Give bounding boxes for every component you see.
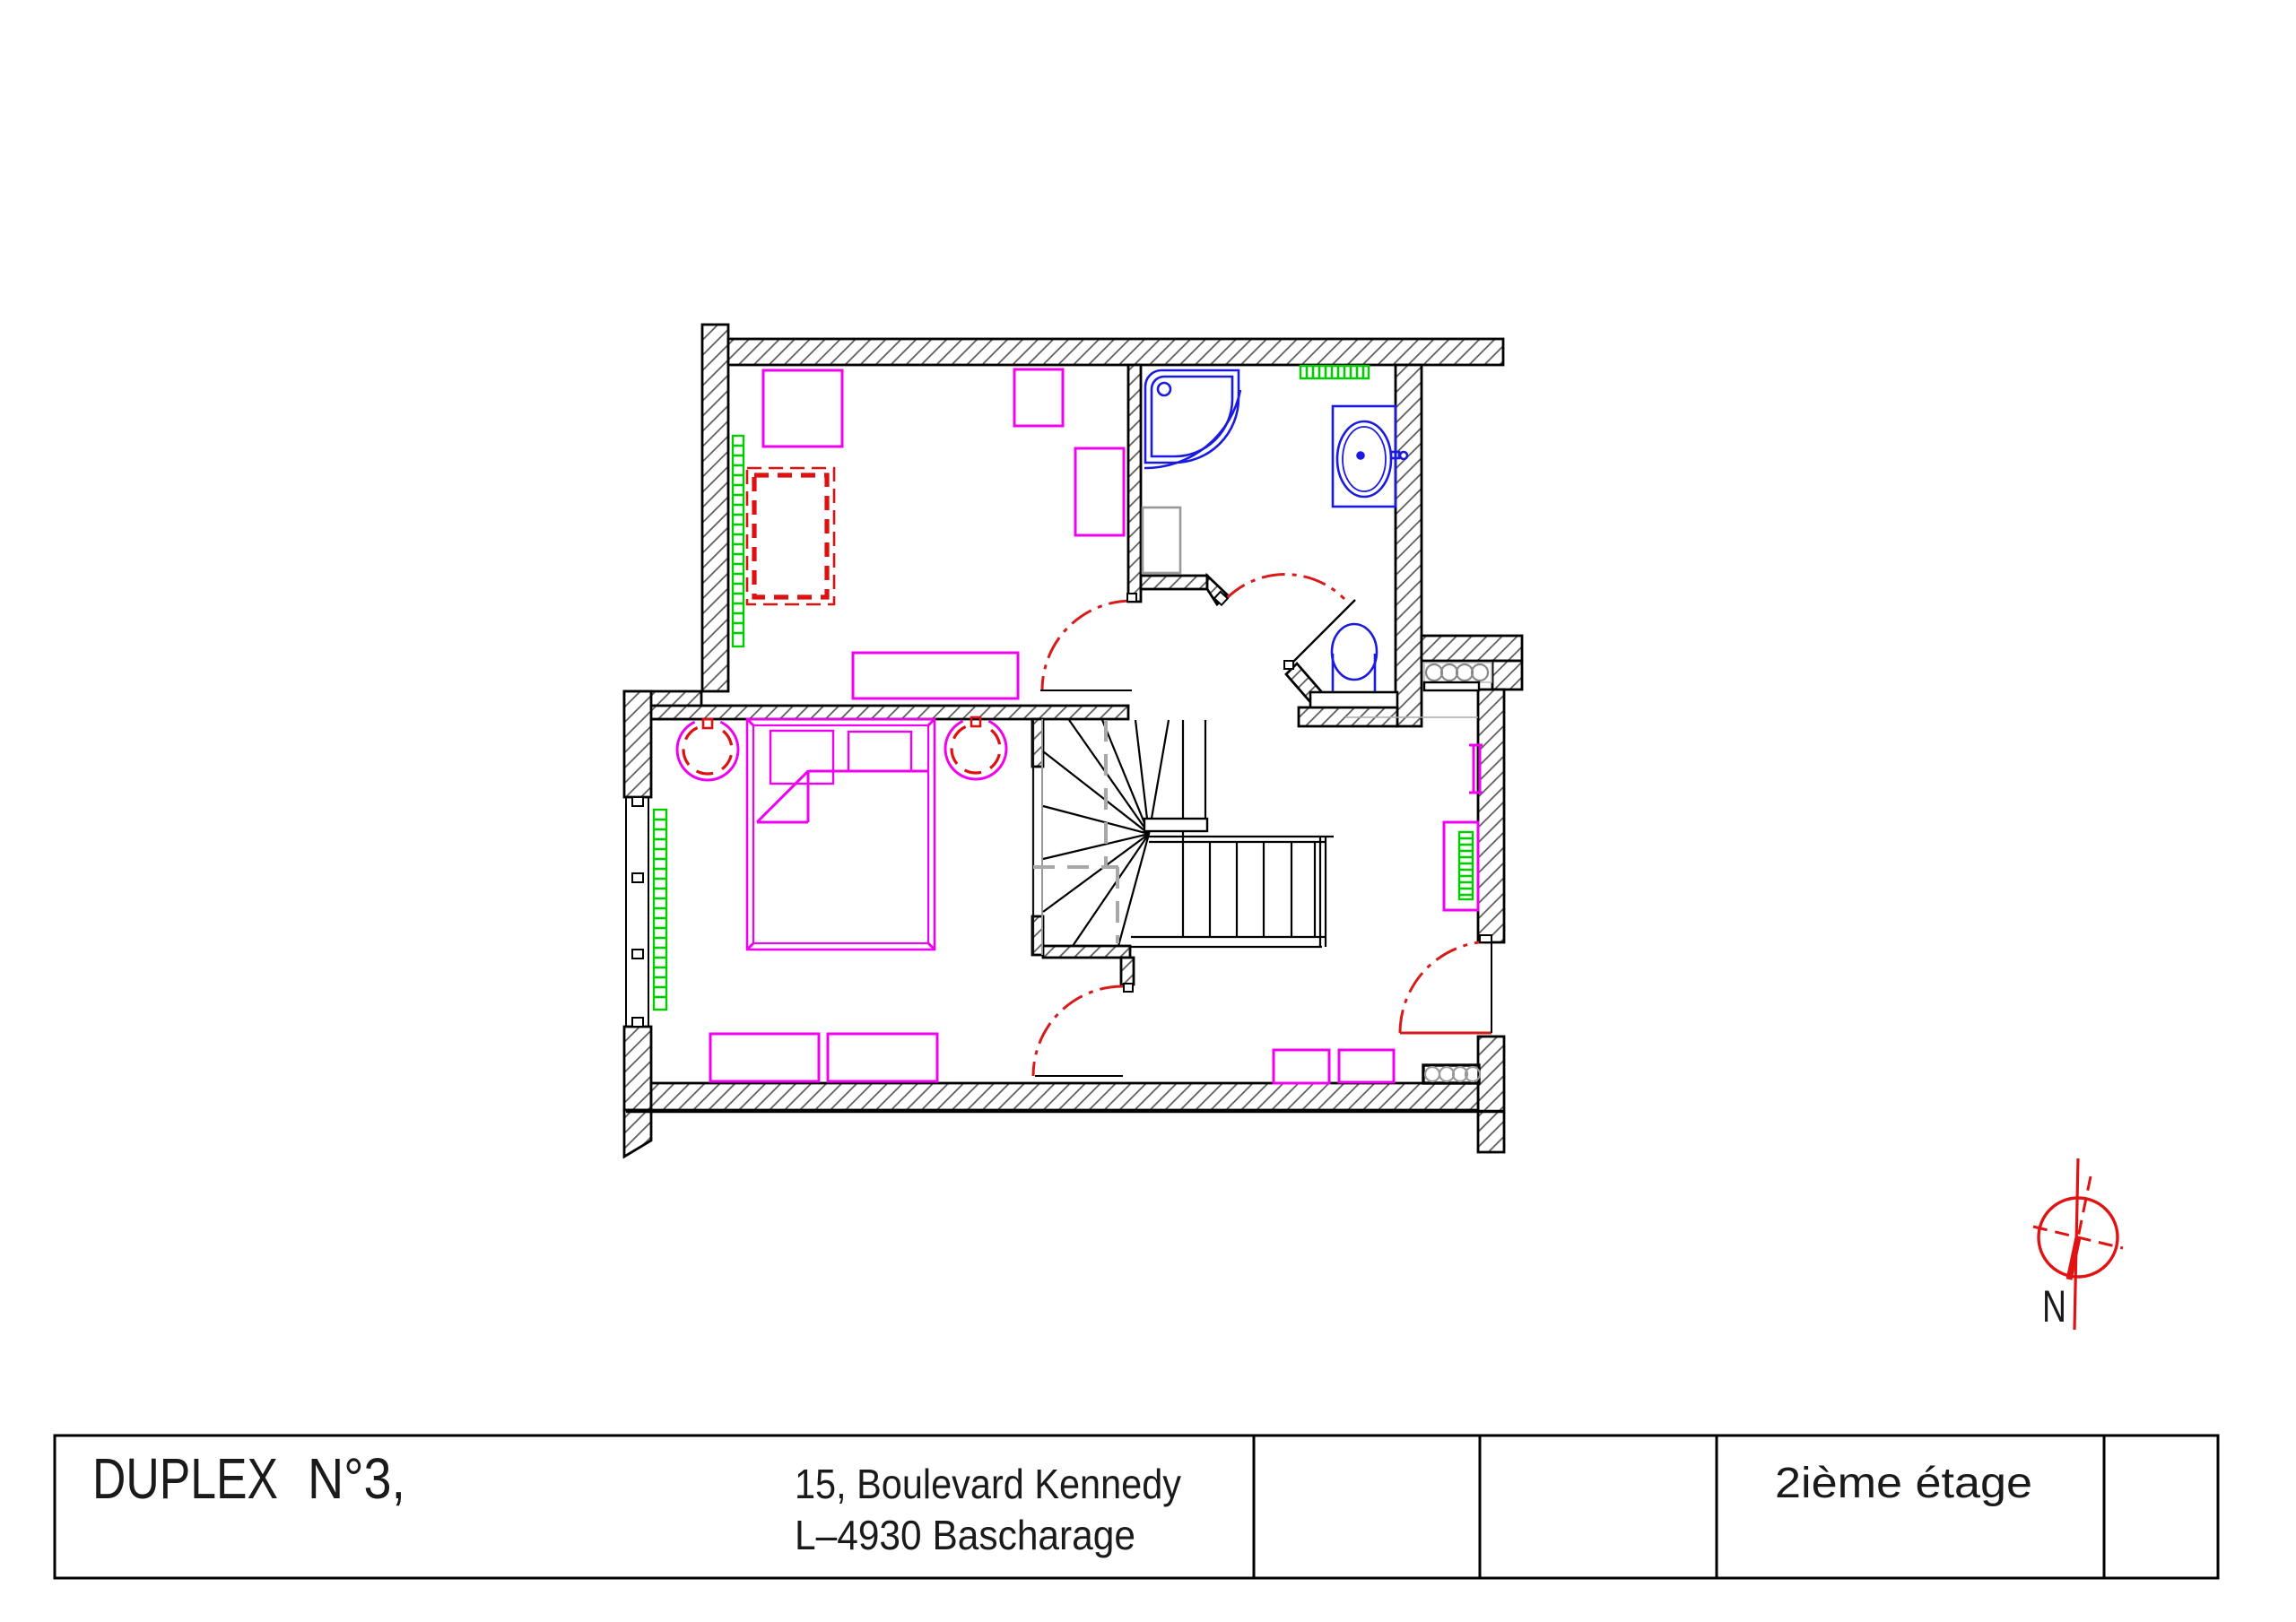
svg-text:L–4930 Bascharage: L–4930 Bascharage <box>795 1512 1135 1558</box>
svg-text:2ième étage: 2ième étage <box>1775 1460 2032 1507</box>
svg-text:N: N <box>2042 1281 2066 1331</box>
svg-text:DUPLEX: DUPLEX <box>92 1446 278 1511</box>
svg-text:15, Boulevard Kennedy: 15, Boulevard Kennedy <box>795 1461 1181 1507</box>
svg-text:N°3,: N°3, <box>308 1446 405 1511</box>
